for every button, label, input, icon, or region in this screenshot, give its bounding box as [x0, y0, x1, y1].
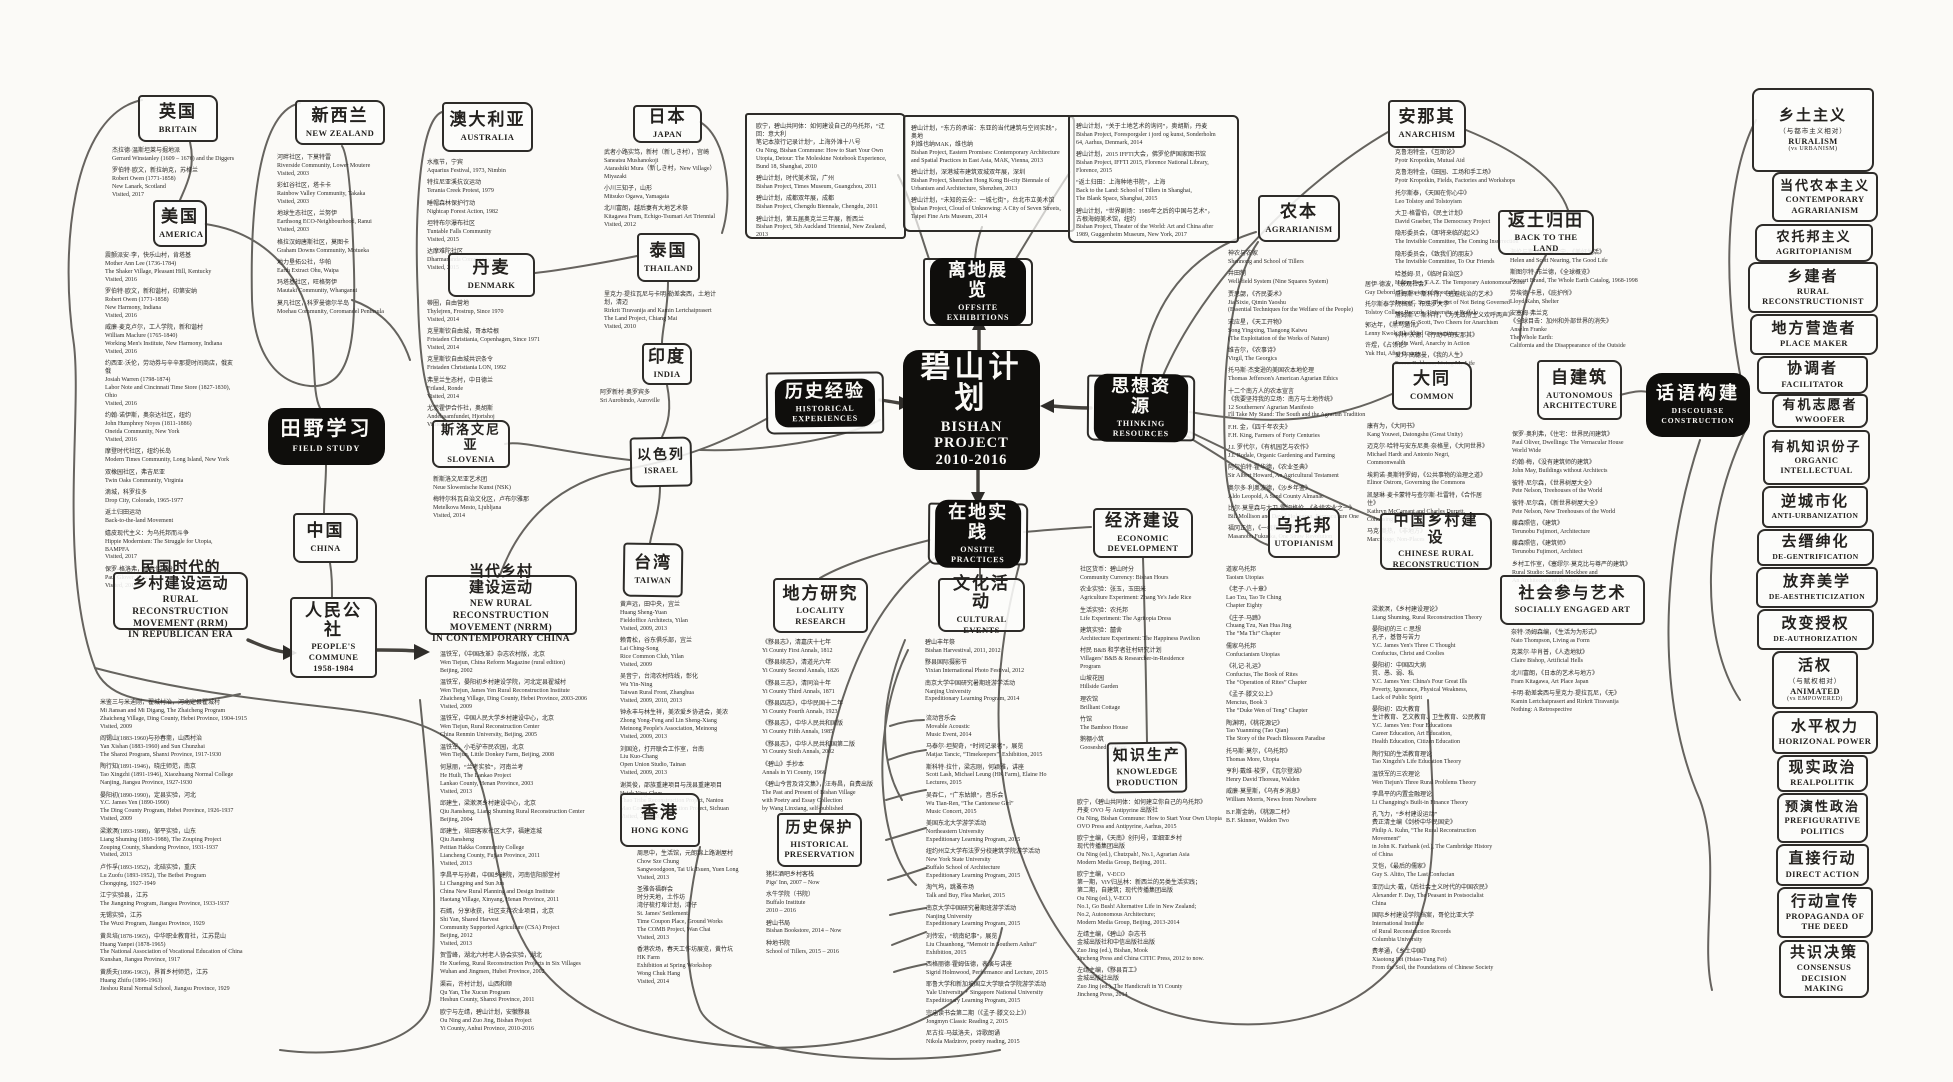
list-entry: 小川三知子，山形 Mitsuko Ogawa, Yamagata	[604, 186, 720, 202]
list-entry: 农业实验：张玉，玉田米 Agriculture Experiment: Zhan…	[1080, 587, 1204, 603]
term-de-aestheticization: 放弃美学DE-AESTHETICIZATION	[1756, 567, 1878, 608]
list-entry: 陶行知(1891-1946)，晓庄师范，南京 Tao Xingzhi (1891…	[100, 764, 345, 788]
box-label-cn: 乌托邦	[1274, 517, 1334, 536]
list-entry: 南京大学中国研究暑期班游学活动 Nanjing University Exped…	[925, 681, 1039, 705]
list-offsite-3: 碧山计划，“关于土地艺术的询问”，奥胡斯，丹麦 Bishan Project, …	[1076, 124, 1228, 245]
bishan-project-mindmap: 田野学习 FIELD STUDY 历史经验 HISTORICAL EXPERIE…	[0, 0, 1953, 1082]
box-label-cn: 英国	[144, 103, 212, 122]
node-historical-experiences: 历史经验 HISTORICAL EXPERIENCES	[766, 371, 885, 434]
box-nrrm: 当代乡村 建设运动NEW RURAL RECONSTRUCTION MOVEME…	[425, 575, 577, 635]
list-entry: 里克力·提拉瓦尼与卡明·勒差裴西，土地计划，清迈 Rirkrit Tiravan…	[604, 292, 718, 332]
node-discourse-construction: 话语构建 DISCOURSE CONSTRUCTION	[1646, 373, 1750, 437]
box-label-en: KNOWLEDGE PRODUCTION	[1113, 766, 1181, 788]
box-label-en: RURAL RECONSTRUCTION MOVEMENT (RRM) IN R…	[119, 595, 242, 643]
list-entry: 生活实验：农托邦 Life Experiment: The Agritopia …	[1080, 608, 1204, 624]
list-entry: 欧宁，《碧山共同体：如何建立你自己的乌托邦》 丹麦 OVO 与 Antipyri…	[1077, 800, 1237, 832]
node-label-cn: 碧山计划	[911, 352, 1032, 415]
term-prefigurative-politics: 预演性政治PREFIGURATIVE POLITICS	[1777, 793, 1868, 843]
list-entry: 晏阳初(1890-1990)，定县实验，河北 Y.C. James Yen (1…	[100, 793, 345, 825]
term-cn: 逆城市化	[1768, 494, 1862, 511]
list-chinese-rural-reconstruction: 梁漱溟，《乡村建设理论》 Liang Shuming, Rural Recons…	[1372, 607, 1496, 977]
list-entry: 黄炎培(1878-1965)，中华职业教育社，江苏昆山 Huang Yanpei…	[100, 934, 345, 966]
box-label-cn: 台湾	[629, 554, 677, 573]
node-label-cn: 历史经验	[785, 382, 865, 402]
list-entry: 井田制 Well-field System (Nine Squares Syst…	[1228, 271, 1386, 287]
list-cultural-events-fan: 流动音乐会 Movable Acoustic Music Event, 2014…	[926, 716, 1056, 1051]
node-label-en: BISHAN PROJECT 2010-2016	[934, 419, 1009, 469]
term-cn: 共识决策	[1785, 945, 1863, 962]
term-cn: 乡建者	[1754, 269, 1872, 286]
box-label-cn: 印度	[648, 348, 686, 367]
term-en: DE-AUTHORIZATION	[1763, 634, 1868, 643]
list-entry: 新斯洛文尼亚艺术团 Neue Slowenische Kunst (NSK)	[433, 477, 541, 493]
node-label-en: OFFSITE EXHIBITIONS	[940, 303, 1016, 323]
list-nrrm: 温铁军，《中国改革》杂志农村版，北京 Wen Tiejun, China Ref…	[440, 652, 645, 1038]
box-label-en: AUTONOMOUS ARCHITECTURE	[1543, 390, 1616, 411]
list-entry: 碧山计划，第五届奥克兰三年展，新西兰 Bishan Project, 5th A…	[756, 217, 896, 241]
term-en: RURALISM	[1758, 136, 1868, 146]
list-entry: 《黟县志》，中华人民共和国第二版 Yi County Sixth Annals,…	[762, 742, 874, 758]
list-entry: 保罗·奥利弗，《住宅：世界民间建筑》 Paul Oliver, Dwelling…	[1512, 432, 1644, 456]
list-entry: F.H. 金，《四千年农夫》 F.H. King, Farmers of For…	[1228, 425, 1386, 441]
list-denmark: 蒂圈，自由营地 Thylejren, Frostrup, Since 1970 …	[427, 301, 549, 434]
node-onsite-practices: 在地实践 ONSITE PRACTICES	[928, 503, 1029, 566]
list-entry: 《礼记·礼运》 Confucius, The Book of Rites The…	[1226, 664, 1344, 688]
list-entry: 碧山计划，“未知的云朵：一城七街”，台北市立美术馆 Bishan Project…	[911, 198, 1065, 222]
box-america: 美国AMERICA	[153, 200, 207, 247]
box-knowledge-production: 知识生产KNOWLEDGE PRODUCTION	[1107, 742, 1188, 794]
list-entry: 威廉·麦克卢尔，工人学院，新和谐村 William Maclure (1765-…	[105, 325, 235, 357]
box-australia: 澳大利亚AUSTRALIA	[442, 102, 533, 152]
list-entry: 流动音乐会 Movable Acoustic Music Event, 2014	[926, 716, 1056, 740]
list-entry: 约翰·诺伊斯，奥奈达社区，纽约 John Humphrey Noyes (181…	[105, 413, 235, 445]
list-entry: 费孝通，《乡土中国》 Xiaotong Fei (Hsiao-Tung Fei)…	[1372, 949, 1496, 973]
list-entry: 北川富朗，《日本的艺术与地方》 Fram Kitagawa, Art Place…	[1511, 671, 1645, 687]
list-offsite-2: 碧山计划，“东方的承诺：东亚的当代建筑与空间实践”，奥地 利维也纳MAK，维也纳…	[911, 126, 1065, 226]
term-direct-action: 直接行动DIRECT ACTION	[1776, 844, 1869, 886]
list-entry: 《碧山》手抄本 Annals in Yi County, 1966	[762, 762, 874, 778]
list-entry: 藤森照信，《建筑》 Terunobu Fujimori, Architectur…	[1512, 521, 1644, 537]
term-cn: 行动宣传	[1783, 894, 1867, 911]
list-entry: 卢作孚(1893-1952)，北碚实验，重庆 Lu Zuofu (1893-19…	[100, 865, 345, 889]
list-entry: 藤森照信，《建筑师》 Terunobu Fujimori, Architect	[1512, 541, 1644, 557]
box-label-en: AMERICA	[159, 229, 201, 240]
list-entry: 摩登时代社区，纽约长岛 Modern Times Community, Long…	[105, 449, 235, 465]
list-entry: 《孟子·滕文公上》 Mencius, Book 3 The “Duke Wen …	[1226, 692, 1344, 716]
list-entry: 纽约州立大学布法罗分校建筑学院游学活动 New York State Unive…	[926, 849, 1056, 881]
term-ruralism: 乡土主义（与都市主义相对）RURALISM(vs URBANISM)	[1752, 88, 1874, 172]
term-de-gentrification: 去缙绅化DE-GENTRIFICATION	[1757, 529, 1874, 566]
list-entry: 温铁军，小毛驴市民农园，北京 Wen Tiejun, Little Donkey…	[440, 745, 645, 761]
list-entry: 卡明·勒差裴西与里克力·提拉瓦尼，《无》 Kamin Lertchaiprase…	[1511, 691, 1645, 715]
list-entry: 特拉尼亚溪抗议运动 Terania Creek Protest, 1979	[427, 180, 539, 196]
list-entry: 奈特·汤姆森编，《生活为为形式》 Nato Thompson, Living a…	[1511, 630, 1645, 646]
list-cultural-events: 碧山丰年祭 Bishan Harvestival, 2011, 2012黟县国际…	[925, 640, 1039, 709]
list-entry: 《黟县志》，中华人民共和国版 Yi County Fifth Annals, 1…	[762, 721, 874, 737]
list-entry: 尼古拉·马兹洛夫，诗歌朗诵 Nikola Madzirov, poetry re…	[926, 1031, 1056, 1047]
box-back-to-the-land: 返土归田BACK TO THE LAND	[1498, 210, 1594, 255]
list-entry: 何慧丽，“兰考实验”，河南兰考 He Huili, The Lankao Pro…	[440, 765, 645, 797]
term-realpolitik: 现实政治REALPOLITIK	[1777, 755, 1868, 792]
list-entry: 震颤派安·李，快乐山村，肯塔基 Mother Ann Lee (1736-178…	[105, 253, 235, 285]
box-label-en: TAIWAN	[629, 575, 677, 586]
box-label-cn: 日本	[639, 108, 696, 127]
box-thailand: 泰国THAILAND	[637, 233, 700, 282]
term-agritopianism: 农托邦主义AGRITOPIANISM	[1755, 224, 1873, 262]
list-entry: 蒂圈，自由营地 Thylejren, Frostrup, Since 1970 …	[427, 301, 549, 325]
list-entry: 亚历山大·戴，《后社会主义时代的中国农民》 Alexander F. Day, …	[1372, 885, 1496, 909]
box-label-cn: 当代乡村 建设运动	[431, 564, 571, 597]
box-label-cn: 返土归田	[1504, 212, 1588, 231]
list-entry: 碧山计划，深港城市建筑双城双年展，深圳 Bishan Project, Shen…	[911, 170, 1065, 194]
box-label-cn: 丹麦	[454, 259, 529, 278]
list-entry: 江宁实验县，江苏 The Jiangning Program, Jiangsu …	[100, 893, 345, 909]
list-entry: 欧宁主编，V-ECO 第一期，ViV归丛林：新西兰的另类生活实践； 第二期，自建…	[1077, 872, 1237, 927]
list-entry: 邱建生，梁漱溟乡村建设中心，北京 Qiu Jiansheng, Liang Sh…	[440, 801, 645, 825]
term-anti-urbanization: 逆城市化ANTI-URBANIZATION	[1762, 486, 1868, 528]
term-cn: 现实政治	[1783, 760, 1862, 777]
list-entry: 碧山书局 Bishan Bookstore, 2014 – Now	[766, 921, 878, 937]
list-entry: 吴吞仁，“广东姑娘”，音乐会 Wu Tian-Ren, “The Cantone…	[926, 793, 1056, 817]
term-en: CONTEMPORARY AGRARIANISM	[1778, 194, 1872, 214]
list-britain: 杰拉德·温斯坦莱与掘地派 Gerrard Winstanley (1609 – …	[112, 148, 244, 204]
term-en: ANIMATED	[1778, 686, 1852, 696]
term-cn: 活权	[1778, 658, 1852, 675]
list-thailand: 里克力·提拉瓦尼与卡明·勒差裴西，土地计划，清迈 Rirkrit Tiravan…	[604, 292, 718, 336]
list-entry: 斯图尔特·布兰德，《全球概览》 Stewart Brand, The Whole…	[1510, 270, 1655, 286]
box-cultural-events: 文化活动CULTURAL EVENTS	[938, 578, 1025, 632]
list-entry: 罗伯特·欧文，新拉纳克，苏格兰 Robert Owen (1771-1858) …	[112, 168, 244, 200]
node-bishan-project: 碧山计划 BISHAN PROJECT 2010-2016	[903, 350, 1040, 470]
term-wwoofer: 有机志愿者WWOOFER	[1772, 394, 1868, 428]
list-entry: 西格丽德·霍姆伍德，表演与讲座 Sigrid Holmwood, Perform…	[926, 962, 1056, 978]
list-entry: “返土归田：上海种地书院”，上海 Back to the Land: Schoo…	[1076, 180, 1228, 204]
box-label-cn: 中国	[299, 522, 352, 541]
list-entry: 南京大学中国研究暑期班游学活动 Nanjing University Exped…	[926, 906, 1056, 930]
list-entry: 杰拉德·温斯坦莱与掘地派 Gerrard Winstanley (1609 – …	[112, 148, 244, 164]
box-china: 中国CHINA	[293, 513, 358, 563]
list-entry: 阿罗新村·奥罗宾多 Sri Aurobindo, Auroville	[600, 390, 700, 406]
term-cn: 放弃美学	[1762, 574, 1872, 591]
list-entry: 美国东北大学游学活动 Northeastern University Exped…	[926, 821, 1056, 845]
list-entry: 碧山丰年祭 Bishan Harvestival, 2011, 2012	[925, 640, 1039, 656]
list-rrm: 米鉴三与米迪刚，翟城村治，河北定县翟城村 Mi Jiansan and Mi D…	[100, 700, 345, 998]
box-label-en: COMMON	[1398, 391, 1466, 402]
list-utopianism: 道家乌托邦 Taoism Utopias《老子·八十章》 Lao Tzu, Ta…	[1226, 567, 1344, 830]
term-contemporary-agrarianism: 当代农本主义CONTEMPORARY AGRARIANISM	[1772, 172, 1878, 222]
box-label-en: CHINA	[299, 543, 352, 554]
list-entry: 社区货币：碧山时分 Community Currency: Bishan Hou…	[1080, 567, 1204, 583]
list-entry: 欧宁，碧山共同体：如何建设自己的乌托邦，“迂回：意大利 笔记本旅行记录计划”，上…	[756, 124, 896, 171]
box-label-en: BRITAIN	[144, 124, 212, 135]
list-entry: 梁漱溟(1893-1988)，邹平实验，山东 Liang Shuming (18…	[100, 829, 345, 861]
box-rrm: 民国时代的 乡村建设运动RURAL RECONSTRUCTION MOVEMEN…	[113, 572, 248, 630]
list-entry: 陶行知的生活教育理论 Tao Xingzhi's Life Education …	[1372, 752, 1496, 768]
list-entry: 安塞姆·弗兰克 《全球目击：加州和外部世界的消失》 Anselm Franke …	[1510, 311, 1655, 351]
list-entry: 坦特布尔瀑布社区 Tuntable Falls Community Visite…	[427, 221, 539, 245]
term-en: HORIZONAL POWER	[1778, 736, 1872, 746]
list-entry: 水牛学院（书院） Buffalo Institute 2010 – 2016	[766, 892, 878, 916]
box-economic-development: 经济建设ECONOMIC DEVELOPMENT	[1093, 508, 1193, 558]
node-label-en: HISTORICAL EXPERIENCES	[785, 404, 865, 425]
list-entry: 温铁军，《中国改革》杂志农村版，北京 Wen Tiejun, China Ref…	[440, 652, 645, 676]
list-entry: 欧宁与左靖，碧山计划，安徽黟县 Ou Ning and Zuo Jing, Bi…	[440, 1010, 645, 1034]
term-note-en: (vs EMPOWERED)	[1778, 696, 1852, 702]
list-entry: 维吉尔，《农事诗》 Virgil, The Georgics	[1228, 348, 1386, 364]
term-animated: 活权（与赋权相对）ANIMATED(vs EMPOWERED)	[1772, 651, 1858, 709]
list-entry: 无锡实验，江苏 The Wuxi Program, Jiangsu Provin…	[100, 913, 345, 929]
term-cn: 协调者	[1763, 361, 1862, 378]
list-entry: 陶渊明，《桃花源记》 Tao Yuanming (Tao Qian) The S…	[1226, 721, 1344, 745]
term-cn: 去缙绅化	[1763, 534, 1868, 551]
box-hong-kong: 香港HONG KONG	[620, 793, 700, 847]
term-horizontal-power: 水平权力HORIZONAL POWER	[1772, 711, 1878, 754]
node-label-en: DISCOURSE CONSTRUCTION	[1661, 406, 1734, 426]
box-label-en: NEW ZEALAND	[301, 128, 379, 139]
list-entry: 彼特·尼尔森，《世界树屋大全》 Pete Nelson, Treehouses …	[1512, 481, 1644, 497]
term-en: DIRECT ACTION	[1782, 869, 1863, 879]
list-entry: 梁漱溟，《乡村建设理论》 Liang Shuming, Rural Recons…	[1372, 607, 1496, 623]
term-cn: 有机志愿者	[1778, 398, 1862, 412]
list-japan: 武者小路实笃，新村（新しき村），宫崎 Saneatsu Mushanokoji …	[604, 150, 720, 235]
list-entry: 国际乡村建设学院档案，哥伦比亚大学 International Institut…	[1372, 913, 1496, 945]
node-label-cn: 话语构建	[1656, 384, 1740, 403]
list-entry: 克里斯钦自由城，哥本哈根 Fristaden Christiania, Cope…	[427, 329, 549, 353]
list-entry: 格拉汉姆唐斯社区，莫图卡 Graham Downs Community, Mot…	[277, 240, 395, 256]
list-entry: 《黟县志》，清嘉庆十七年 Yi County First Annals, 181…	[762, 640, 874, 656]
term-cn: 地方营造者	[1756, 321, 1872, 338]
list-entry: 彩虹谷社区，塔卡卡 Rainbow Valley Community, Taka…	[277, 183, 395, 207]
box-label-cn: 香港	[626, 804, 694, 823]
box-india: 印度INDIA	[642, 343, 692, 385]
box-chinese-rural-reconstruction: 中国乡村建设CHINESE RURAL RECONSTRUCTION	[1380, 513, 1492, 570]
list-entry: 碧山计划，“东方的承诺：东亚的当代建筑与空间实践”，奥地 利维也纳MAK，维也纳…	[911, 126, 1065, 166]
box-label-cn: 农本	[1264, 203, 1334, 222]
list-entry: 迈克尔·哈特与安东尼奥·奈格里，《大同世界》 Michael Hardt and…	[1367, 444, 1489, 468]
box-label-cn: 地方研究	[779, 585, 862, 604]
node-label-en: ONSITE PRACTICES	[945, 545, 1011, 566]
list-entry: 儒家乌托邦 Confucianism Utopias	[1226, 644, 1344, 660]
list-locality-research: 《黟县志》，清嘉庆十七年 Yi County First Annals, 181…	[762, 640, 874, 818]
box-label-en: ANARCHISM	[1394, 129, 1460, 140]
term-cn: 直接行动	[1782, 851, 1863, 868]
box-socially-engaged-art: 社会参与艺术SOCIALLY ENGAGED ART	[1500, 575, 1645, 625]
list-entry: 双橡园社区，弗吉尼亚 Twin Oaks Community, Virginia	[105, 470, 235, 486]
box-label-en: CHINESE RURAL RECONSTRUCTION	[1386, 548, 1486, 569]
list-entry: 黄声远，田中央，宜兰 Huang Sheng-Yuan Fieldoffice …	[620, 602, 742, 634]
list-entry: 《老子·八十章》 Lao Tzu, Tao Te Ching Chapter E…	[1226, 587, 1344, 611]
list-entry: 克鲁泡特金，《田园、工场和手工场》 Pyotr Kropotkin, Field…	[1395, 170, 1550, 186]
box-label-en: ECONOMIC DEVELOPMENT	[1099, 533, 1187, 554]
box-label-cn: 文化活动	[944, 575, 1019, 612]
list-entry: 邱建生，培田客家社区大学，福建连城 Qiu Jiansheng Peitian …	[440, 829, 645, 869]
list-entry: 康有为，《大同书》 Kang Youwei, Datongshu (Great …	[1367, 424, 1489, 440]
list-entry: 约西亚·沃伦，劳动券与辛辛那提时间商店，俄亥俄 Josiah Warren (1…	[105, 361, 235, 408]
box-label-cn: 历史保护	[783, 820, 856, 837]
list-entry: 贾思勰，《齐民要术》 Jia Sixie, Qimin Yaoshu (Esse…	[1228, 292, 1386, 316]
list-autonomous-architecture: 保罗·奥利弗，《住宅：世界民间建筑》 Paul Oliver, Dwelling…	[1512, 432, 1644, 590]
term-cn: 农托邦主义	[1761, 230, 1867, 244]
node-label-cn: 思想资源	[1104, 377, 1178, 417]
list-entry: 温铁军的三农理论 Wen Tiejun's Three Rural Proble…	[1372, 772, 1496, 788]
list-entry: 理农馆 Brilliant Cottage	[1080, 697, 1204, 713]
term-en: PROPAGANDA OF THE DEED	[1783, 911, 1867, 931]
box-label-en: ISRAEL	[636, 465, 686, 476]
node-label-en: FIELD STUDY	[293, 443, 361, 454]
list-entry: 亨利·戴维·梭罗，《瓦尔登湖》 Henry David Thoreau, Wal…	[1226, 769, 1344, 785]
term-en: CONSENSUS DECISION MAKING	[1785, 962, 1863, 993]
list-entry: 猪栏酒吧乡村客栈 Pigs' Inn, 2007 – Now	[766, 872, 878, 888]
box-label-en: HONG KONG	[626, 825, 694, 836]
list-entry: 山坡花园 Hillside Garden	[1080, 676, 1204, 692]
box-label-en: THAILAND	[643, 263, 694, 274]
box-label-cn: 知识生产	[1113, 747, 1181, 764]
list-entry: 托尔斯泰，《天国在你心中》 Leo Tolstoy and Tolstoyism	[1395, 191, 1550, 207]
node-label-cn: 田野学习	[281, 419, 373, 440]
box-label-cn: 美国	[159, 208, 201, 227]
box-utopianism: 乌托邦UTOPIANISM	[1268, 508, 1340, 558]
term-place-maker: 地方营造者PLACE MAKER	[1750, 314, 1878, 355]
list-entry: 米鉴三与米迪刚，翟城村治，河北定县翟城村 Mi Jiansan and Mi D…	[100, 700, 345, 732]
box-label-en: AGRARIANISM	[1264, 224, 1334, 235]
box-label-en: UTOPIANISM	[1274, 538, 1334, 549]
list-entry: 晏阳初：中国四大病 贫、愚、弱、私 Y.C. James Yen: China'…	[1372, 663, 1496, 703]
list-offsite-1: 欧宁，碧山共同体：如何建设自己的乌托邦，“迂回：意大利 笔记本旅行记录计划”，上…	[756, 124, 896, 245]
list-entry: 弗里兰生态村，中日德兰 Friland, Ronde Visited, 2014	[427, 378, 549, 402]
list-entry: 梅特尔科瓦自治文化区，卢布尔雅那 Metelkova Mesto, Ljublj…	[433, 497, 541, 521]
term-rural-reconstructionist: 乡建者RURAL RECONSTRUCTIONIST	[1748, 262, 1878, 313]
box-label-cn: 人民公社	[296, 602, 371, 639]
node-label-cn: 在地实践	[945, 503, 1011, 543]
node-label-en: THINKING RESOURCES	[1104, 419, 1178, 440]
list-entry: 晏阳初的三 C 思想 孔子，基督与苦力 Y.C. James Yen's Thr…	[1372, 627, 1496, 659]
box-israel: 以色列ISRAEL	[630, 436, 693, 487]
list-slovenia: 新斯洛文尼亚艺术团 Neue Slowenische Kunst (NSK)梅特…	[433, 477, 541, 526]
box-label-en: BACK TO THE LAND	[1504, 232, 1588, 253]
box-label-en: HISTORICAL PRESERVATION	[783, 839, 856, 860]
list-entry: 晏阳初：四大教育 生计教育、艺文教育、卫生教育、公民教育 Y.C. James …	[1372, 707, 1496, 747]
list-entry: 温铁军，晏阳初乡村建设学院，河北定县翟城村 Wen Tiejun, James …	[440, 680, 645, 712]
box-peoples-commune: 人民公社PEOPLE'S COMMUNE 1958-1984	[290, 597, 377, 678]
list-entry: 阎锡山(1883-1960)与孙春斋，山西村治 Yan Xishan (1883…	[100, 736, 345, 760]
term-en: PREFIGURATIVE POLITICS	[1783, 815, 1862, 835]
list-entry: 耶鲁大学和新加坡国立大学联合学院游学活动 Yale University + S…	[926, 982, 1056, 1006]
box-label-cn: 安那其	[1394, 108, 1460, 127]
term-en: WWOOFER	[1778, 414, 1862, 424]
term-cn: 当代农本主义	[1778, 179, 1872, 193]
list-entry: 十二个南方人的农本宣言 《我要坚持我的立场：南方与土地传统》 12 Southe…	[1228, 389, 1386, 421]
box-denmark: 丹麦DENMARK	[448, 253, 535, 297]
list-entry: 石嫣，分享收获，社区支持农业项目，北京 Shi Yan, Shared Harv…	[440, 909, 645, 949]
list-entry: 马泰尔·坦契奇，“时间记录者”，展览 Matjaz Tancic, “Timek…	[926, 744, 1056, 760]
list-entry: 贺雪峰，湖北六村老人协会实验，湖北 He Xuefeng, Rural Reco…	[440, 953, 645, 977]
list-entry: 道家乌托邦 Taoism Utopias	[1226, 567, 1344, 583]
list-entry: 《黟县三志》，清同治十年 Yi County Third Annals, 187…	[762, 681, 874, 697]
box-autonomous-architecture: 自建筑AUTONOMOUS ARCHITECTURE	[1537, 360, 1622, 420]
list-entry: 克莱尔·毕肖普，《人造地狱》 Claire Bishop, Artificial…	[1511, 650, 1645, 666]
list-entry: 李昌平与孙君，中国乡建院，河南信阳郝堂村 Li Changping and Su…	[440, 873, 645, 905]
list-entry: 宗庙读书会第二期（《孟子·滕文公上》） Jongmyn Classic Read…	[926, 1011, 1056, 1027]
list-entry: 罗伯特·欧文，新和谐村，印第安纳 Robert Owen (1771-1858)…	[105, 289, 235, 321]
box-label-cn: 民国时代的 乡村建设运动	[119, 560, 242, 593]
list-india: 阿罗新村·奥罗宾多 Sri Aurobindo, Auroville	[600, 390, 700, 410]
list-entry: 彼特·尼尔森，《新世界树屋大全》 Pete Nelson, New Treeho…	[1512, 501, 1644, 517]
list-america: 震颤派安·李，快乐山村，肯塔基 Mother Ann Lee (1736-178…	[105, 253, 235, 595]
box-label-cn: 社会参与艺术	[1506, 585, 1639, 603]
list-entry: 孔飞力，“乡村建设运动” 费正清主编《剑桥中华民国史》 Philip A. Ku…	[1372, 812, 1496, 859]
list-entry: 托马斯·莫尔，《乌托邦》 Thomas More, Utopia	[1226, 749, 1344, 765]
box-label-en: PEOPLE'S COMMUNE 1958-1984	[296, 641, 371, 673]
list-entry: 渠岩，许村计划，山西和顺 Qu Yan, The Xucun Program H…	[440, 982, 645, 1006]
list-entry: 淘气坞，跳蚤市场 Talk and Buy, Flea Market, 2015	[926, 885, 1056, 901]
box-label-cn: 中国乡村建设	[1386, 513, 1486, 546]
list-entry: 《黟县四志》，中华民国十二年 Yi County Fourth Annals, …	[762, 701, 874, 717]
box-label-en: CULTURAL EVENTS	[944, 614, 1019, 635]
list-entry: 嬉皮现代主义：为乌托邦而斗争 Hippie Modernism: The Str…	[105, 531, 235, 563]
box-taiwan: 台湾TAIWAN	[623, 543, 684, 598]
box-historical-preservation: 历史保护HISTORICAL PRESERVATION	[777, 813, 862, 867]
list-entry: 埃莉诺·奥斯特罗姆，《公共事物的治理之道》 Elinor Ostrom, Gov…	[1367, 473, 1489, 489]
list-entry: 左靖主编，《黟县百工》 金城出版社出版 Zuo Jing (ed.), The …	[1077, 968, 1237, 1000]
list-entry: 睡帽森林保护行动 Nightcap Forest Action, 1982	[427, 201, 539, 217]
term-en: RURAL RECONSTRUCTIONIST	[1754, 286, 1872, 306]
term-cn: 水平权力	[1778, 719, 1872, 736]
box-label-en: DENMARK	[454, 280, 529, 291]
term-en: AGRITOPIANISM	[1761, 246, 1867, 256]
term-note-en: (vs URBANISM)	[1758, 146, 1868, 152]
term-propaganda-of-the-deed: 行动宣传PROPAGANDA OF THE DEED	[1777, 887, 1873, 938]
box-label-cn: 自建筑	[1543, 369, 1616, 388]
box-agrarianism: 农本AGRARIANISM	[1258, 195, 1340, 242]
term-cn: 改变授权	[1763, 616, 1868, 633]
list-entry: 温铁军，中国人民大学乡村建设中心，北京 Wen Tiejun, Rural Re…	[440, 716, 645, 740]
list-entry: 克里斯钦自由城共识条令 Fristaden Christiania LON, 1…	[427, 357, 549, 373]
list-economic-development: 社区货币：碧山时分 Community Currency: Bishan Hou…	[1080, 567, 1204, 758]
box-label-cn: 澳大利亚	[448, 111, 527, 130]
list-new-zealand: 河畔社区，下莫特雷 Riverside Community, Lower Mou…	[277, 155, 395, 321]
list-entry: B.F.斯金纳，《桃源二村》 B.F. Skinner, Walden Two	[1226, 810, 1344, 826]
list-entry: 托马斯·杰斐逊的美国农本地伦理 Thomas Jefferson's Ameri…	[1228, 368, 1386, 384]
list-entry: 竹馆 The Bamboo House	[1080, 717, 1204, 733]
list-entry: 碧山计划，“关于土地艺术的询问”，奥胡斯，丹麦 Bishan Project, …	[1076, 124, 1228, 148]
list-entry: 莫凡社区，科罗曼德尔半岛 Moehau Community, Coromande…	[277, 301, 395, 317]
term-en: DE-GENTRIFICATION	[1763, 552, 1868, 561]
node-label-cn: 离地展览	[940, 261, 1016, 301]
box-label-cn: 斯洛文尼亚	[438, 423, 504, 452]
list-agrarianism: 神农与农家 Shennong and School of Tillers井田制 …	[1228, 251, 1386, 547]
box-slovenia: 斯洛文尼亚SLOVENIA	[432, 420, 510, 468]
node-thinking-resources: 思想资源 THINKING RESOURCES	[1087, 375, 1195, 442]
box-britain: 英国BRITAIN	[138, 95, 218, 142]
box-label-en: LOCALITY RESEARCH	[779, 605, 862, 626]
node-offsite-exhibitions: 离地展览 OFFSITE EXHIBITIONS	[923, 258, 1033, 326]
term-en: REALPOLITIK	[1783, 777, 1862, 787]
term-cn: 预演性政治	[1783, 800, 1862, 814]
box-label-cn: 大同	[1398, 370, 1466, 389]
list-entry: 《庄子·马蹄》 Chuang Tzu, Nan Hua Jing The “Ma…	[1226, 616, 1344, 640]
term-en: PLACE MAKER	[1756, 338, 1872, 348]
list-entry: 克鲁泡特金，《互助论》 Pyotr Kropotkin, Mutual Aid	[1395, 150, 1550, 166]
box-new-zealand: 新西兰NEW ZEALAND	[295, 100, 385, 145]
term-consensus-decision-making: 共识决策CONSENSUS DECISION MAKING	[1779, 940, 1869, 998]
list-entry: J.I. 罗代尔，《有机园艺与农作》 J.I. Rodale, Organic …	[1228, 445, 1386, 461]
term-note: （与都市主义相对）	[1758, 125, 1868, 135]
list-entry: 《碧山今昔及诗文集》，汪寿昌，自费出版 The Past and Present…	[762, 782, 874, 814]
list-entry: 欧宁主编，《天南》创刊号，亚细亚乡村 现代传播集团出版 Ou Ning (ed.…	[1077, 836, 1237, 868]
list-entry: 约翰·梅，《没有建筑师的建筑》 John May, Buildings with…	[1512, 460, 1644, 476]
term-cn: 乡土主义	[1758, 108, 1868, 125]
list-entry: 地球生态社区，兰努伊 Earthsong ECO-Neighbourhood, …	[277, 211, 395, 235]
